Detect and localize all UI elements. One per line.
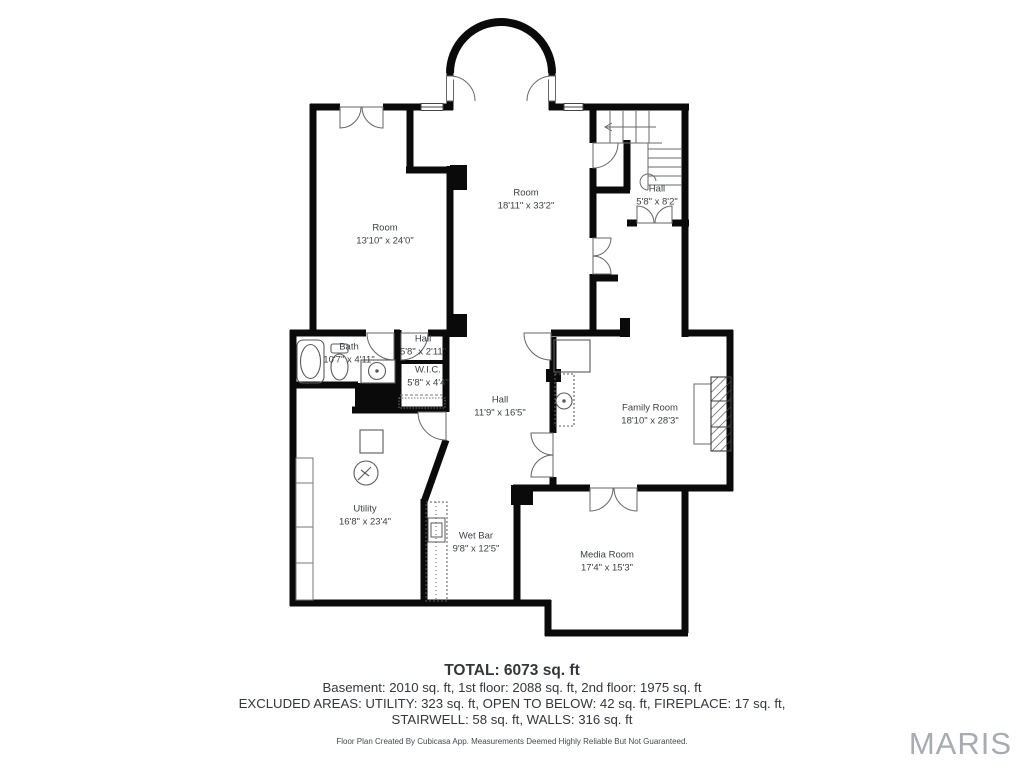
floor-plan-drawing — [0, 0, 1024, 768]
room-label: Room 18'11" x 33'2" — [498, 187, 555, 212]
room-label: Room 13'10" x 24'0" — [356, 222, 413, 247]
door-arcs — [340, 76, 672, 511]
room-dims: 5'8" x 8'2" — [636, 196, 678, 209]
floor-plan-page: Room 13'10" x 24'0" Room 18'11" x 33'2" … — [0, 0, 1024, 768]
room-dims: 17'4" x 15'3" — [580, 562, 634, 575]
furnace-icon — [360, 430, 383, 453]
room-name: Room — [356, 222, 413, 235]
total-area: TOTAL: 6073 sq. ft — [0, 662, 1024, 680]
room-label: W.I.C. 5'8" x 4'4" — [407, 364, 449, 389]
room-name: Hall — [474, 394, 525, 407]
floor-areas: Basement: 2010 sq. ft, 1st floor: 2088 s… — [0, 680, 1024, 696]
room-name: Hall — [400, 333, 446, 346]
family-sink-icon — [554, 340, 590, 426]
room-dims: 5'8" x 4'4" — [407, 377, 449, 390]
excluded-areas-line2: STAIRWELL: 58 sq. ft, WALLS: 316 sq. ft — [0, 712, 1024, 728]
room-label: Utility 16'8" x 23'4" — [339, 503, 391, 528]
excluded-areas-line1: EXCLUDED AREAS: UTILITY: 323 sq. ft, OPE… — [0, 696, 1024, 712]
room-dims: 5'8" x 2'11" — [400, 346, 446, 359]
room-label: Hall 5'8" x 2'11" — [400, 333, 446, 358]
room-label: Hall 11'9" x 16'5" — [474, 394, 525, 419]
area-summary: TOTAL: 6073 sq. ft Basement: 2010 sq. ft… — [0, 662, 1024, 747]
electrical-panel-icon — [354, 461, 378, 485]
bathtub-icon — [297, 340, 324, 383]
room-label: Hall 5'8" x 8'2" — [636, 183, 678, 208]
room-name: Hall — [636, 183, 678, 196]
room-dims: 18'10" x 28'3" — [621, 415, 678, 428]
room-dims: 9'8" x 12'5" — [453, 543, 500, 556]
room-label: Family Room 18'10" x 28'3" — [621, 402, 678, 427]
room-label: Bath 10'7" x 4'11" — [323, 341, 374, 366]
room-label: Wet Bar 9'8" x 12'5" — [453, 530, 500, 555]
room-name: Bath — [323, 341, 374, 354]
fireplace-icon — [694, 377, 731, 451]
room-dims: 13'10" x 24'0" — [356, 235, 413, 248]
room-name: Media Room — [580, 549, 634, 562]
wet-bar-counter — [426, 502, 447, 601]
room-name: Utility — [339, 503, 391, 516]
room-dims: 11'9" x 16'5" — [474, 407, 525, 420]
room-label: Media Room 17'4" x 15'3" — [580, 549, 634, 574]
closet-shelf — [399, 395, 445, 408]
shelving — [296, 458, 313, 600]
room-dims: 18'11" x 33'2" — [498, 200, 555, 213]
maris-logo: MARIS — [909, 726, 1012, 762]
disclaimer: Floor Plan Created By Cubicasa App. Meas… — [0, 737, 1024, 747]
room-name: Wet Bar — [453, 530, 500, 543]
room-dims: 16'8" x 23'4" — [339, 516, 391, 529]
room-dims: 10'7" x 4'11" — [323, 354, 374, 367]
room-name: W.I.C. — [407, 364, 449, 377]
room-name: Family Room — [621, 402, 678, 415]
room-name: Room — [498, 187, 555, 200]
